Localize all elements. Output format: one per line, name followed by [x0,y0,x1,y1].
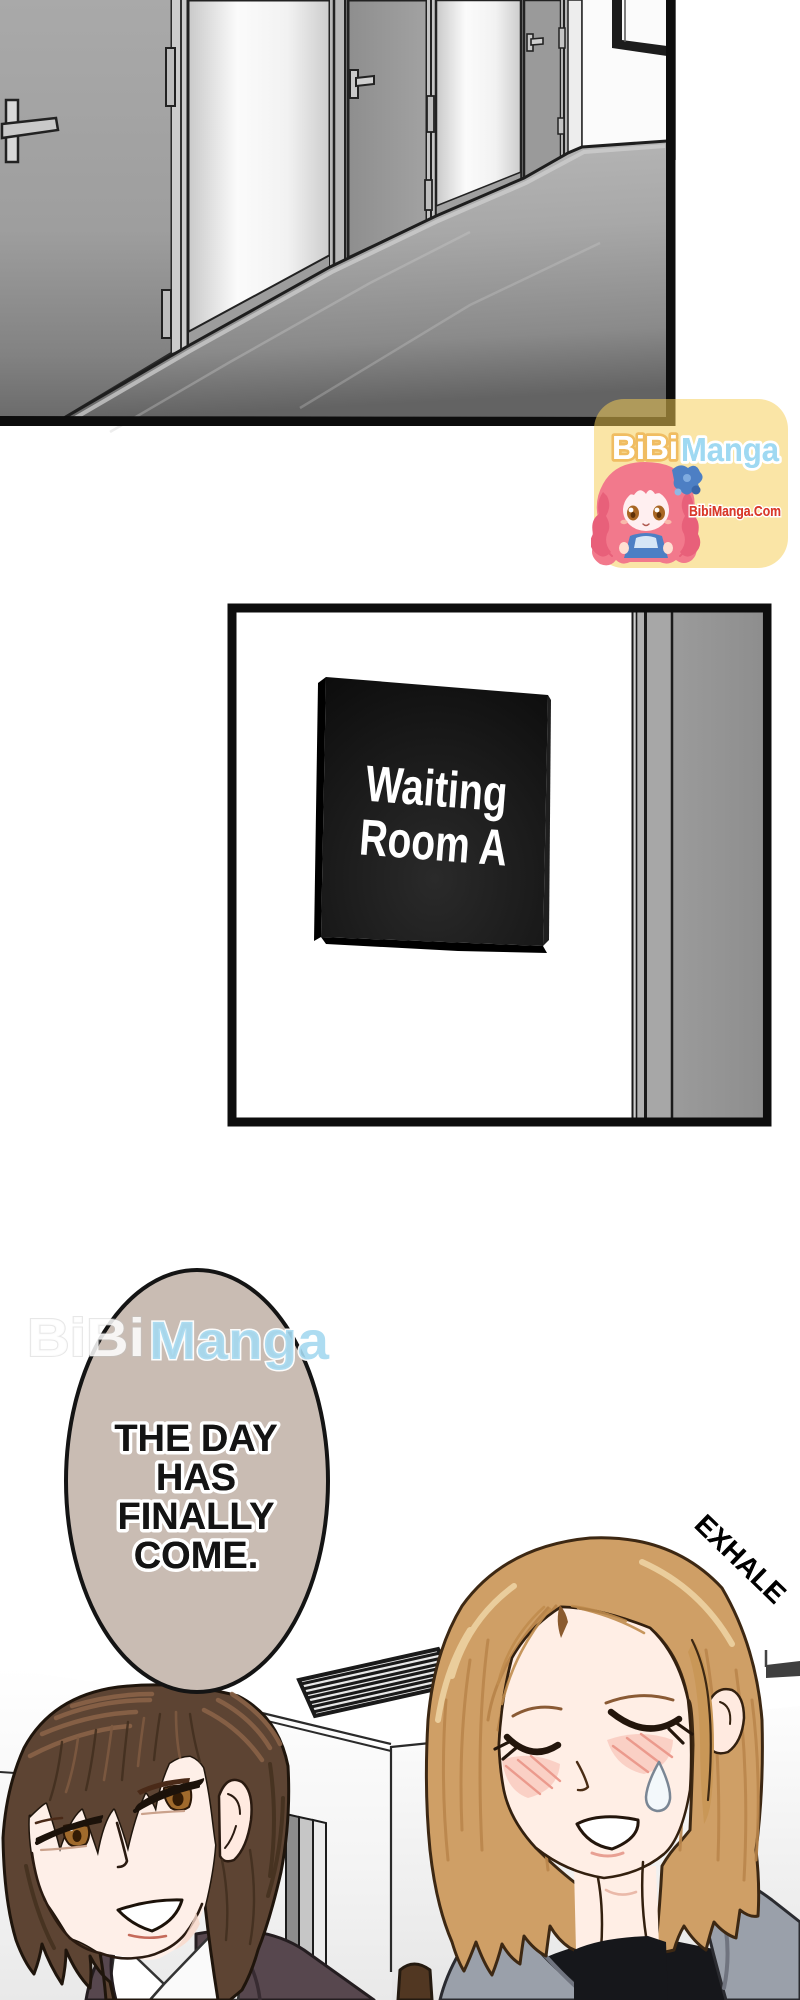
svg-text:Room A: Room A [358,808,510,876]
svg-text:Manga: Manga [149,1311,330,1371]
svg-text:BiBi: BiBi [612,429,678,466]
svg-text:Manga: Manga [681,431,780,468]
svg-text:BiBi: BiBi [27,1308,145,1368]
svg-text:EXHALE: EXHALE [689,1508,792,1609]
svg-text:THE DAY: THE DAY [114,1418,277,1460]
svg-text:FINALLY: FINALLY [118,1496,275,1538]
svg-text:BibiManga.Com: BibiManga.Com [689,503,781,520]
svg-text:HAS: HAS [156,1457,236,1499]
svg-text:COME.: COME. [134,1535,259,1577]
